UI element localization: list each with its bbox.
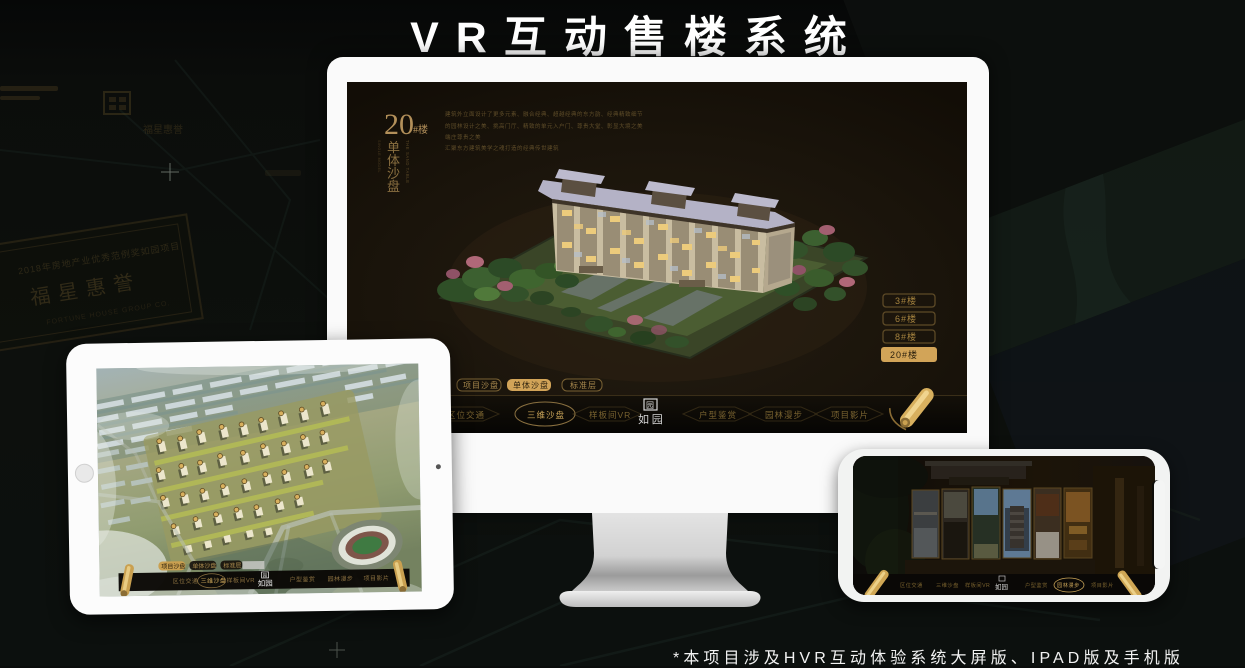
svg-text:如园: 如园 [995, 582, 1008, 591]
svg-text:区位交通: 区位交通 [900, 581, 923, 589]
svg-text:SINGLE MODEL: SINGLE MODEL [377, 140, 381, 173]
svg-text:6#楼: 6#楼 [895, 313, 917, 324]
svg-text:项目影片: 项目影片 [831, 410, 869, 420]
svg-text:三维沙盘: 三维沙盘 [527, 410, 565, 420]
svg-text:项目影片: 项目影片 [1091, 581, 1114, 589]
svg-text:3#楼: 3#楼 [895, 295, 917, 306]
svg-text:汇聚东方建筑美学之魂打造的经典传世建筑: 汇聚东方建筑美学之魂打造的经典传世建筑 [445, 144, 559, 152]
svg-text:标准层: 标准层 [223, 561, 241, 569]
svg-text:建筑外立面设计了更多元素、融合经典、超越经典的东方韵、经典精: 建筑外立面设计了更多元素、融合经典、超越经典的东方韵、经典精致细节 [445, 110, 643, 118]
svg-text:园林漫步: 园林漫步 [765, 410, 803, 420]
svg-text:园林漫步: 园林漫步 [1057, 581, 1080, 589]
svg-text:样板间VR: 样板间VR [589, 410, 631, 420]
svg-text:户型鉴赏: 户型鉴赏 [699, 410, 737, 420]
svg-text:区位交通: 区位交通 [447, 410, 485, 420]
svg-text:8#楼: 8#楼 [895, 331, 917, 342]
svg-text:如园: 如园 [258, 578, 273, 588]
svg-text:项目沙盘: 项目沙盘 [463, 380, 499, 390]
svg-text:盘: 盘 [387, 179, 400, 194]
svg-text:园: 园 [646, 401, 654, 410]
svg-text:20: 20 [384, 108, 414, 141]
svg-text:样板间VR: 样板间VR [965, 581, 990, 589]
svg-text:的园林设计之美、挑高门厅、精致的单元入户门、尊贵大堂、彰显大: 的园林设计之美、挑高门厅、精致的单元入户门、尊贵大堂、彰显大境之美 [445, 122, 643, 130]
svg-text:THE SAND TABLE: THE SAND TABLE [405, 140, 410, 184]
svg-text:福星惠誉: 福星惠誉 [143, 123, 183, 136]
svg-text:三维沙盘: 三维沙盘 [936, 581, 959, 589]
svg-text:如 园: 如 园 [638, 412, 663, 426]
svg-text:端庄尊贵之美: 端庄尊贵之美 [445, 133, 481, 141]
svg-text:20#楼: 20#楼 [890, 349, 918, 360]
svg-text:单体沙盘: 单体沙盘 [513, 380, 549, 390]
svg-text:标准层: 标准层 [570, 380, 597, 390]
svg-text:户型鉴赏: 户型鉴赏 [1025, 581, 1048, 589]
svg-text:#楼: #楼 [413, 123, 428, 136]
